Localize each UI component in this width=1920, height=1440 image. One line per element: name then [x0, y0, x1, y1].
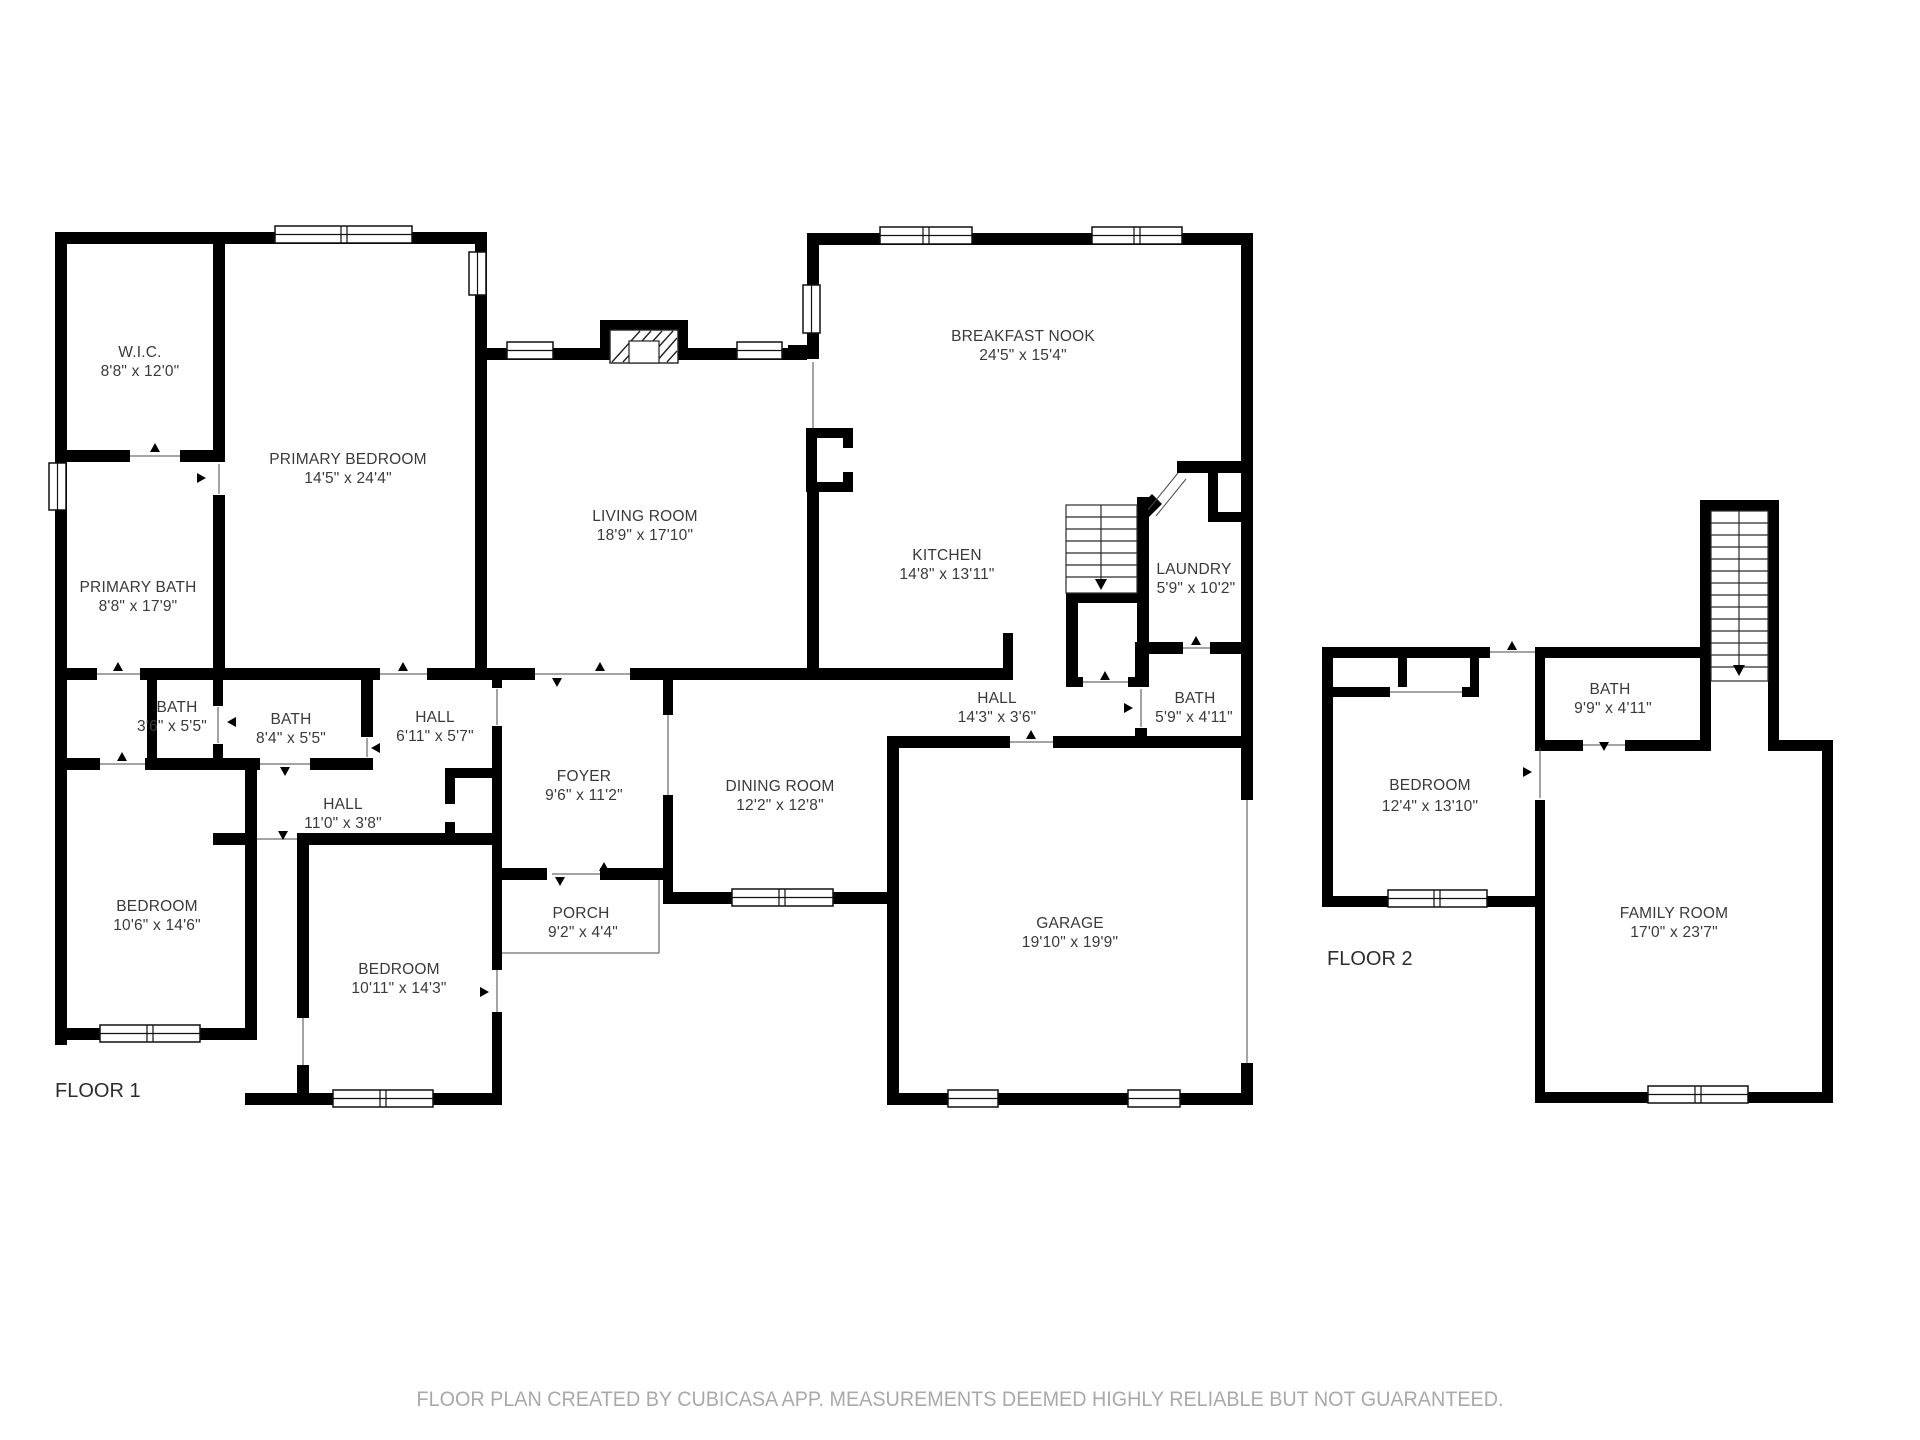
- svg-text:LIVING ROOM: LIVING ROOM: [592, 508, 698, 525]
- svg-text:17'0" x 23'7": 17'0" x 23'7": [1630, 924, 1718, 941]
- door-markers: [113, 443, 1609, 997]
- svg-text:DINING ROOM: DINING ROOM: [726, 778, 835, 795]
- room-label-bedroom-mid: BEDROOM10'11" x 14'3": [351, 961, 446, 997]
- floor-plan-page: W.I.C.8'8" x 12'0" PRIMARY BEDROOM14'5" …: [0, 0, 1920, 1440]
- room-label-living: LIVING ROOM18'9" x 17'10": [592, 508, 698, 544]
- svg-text:14'5" x 24'4": 14'5" x 24'4": [304, 470, 392, 487]
- svg-text:FAMILY ROOM: FAMILY ROOM: [1620, 905, 1728, 922]
- svg-text:BATH: BATH: [271, 711, 312, 728]
- room-label-wic: W.I.C.8'8" x 12'0": [101, 344, 180, 380]
- svg-text:HALL: HALL: [977, 690, 1017, 707]
- room-label-dining: DINING ROOM12'2" x 12'8": [726, 778, 835, 814]
- svg-text:12'2" x 12'8": 12'2" x 12'8": [736, 797, 824, 814]
- room-label-hall-small: HALL6'11" x 5'7": [396, 709, 474, 745]
- svg-text:PRIMARY BEDROOM: PRIMARY BEDROOM: [269, 451, 426, 468]
- svg-text:10'6" x 14'6": 10'6" x 14'6": [113, 917, 201, 934]
- svg-text:BATH: BATH: [1175, 690, 1216, 707]
- fireplace: [600, 320, 688, 363]
- disclaimer-text: FLOOR PLAN CREATED BY CUBICASA APP. MEAS…: [417, 1387, 1504, 1411]
- svg-text:HALL: HALL: [415, 709, 455, 726]
- svg-text:PORCH: PORCH: [553, 905, 610, 922]
- svg-text:14'3" x 3'6": 14'3" x 3'6": [958, 709, 1037, 726]
- svg-text:14'8" x 13'11": 14'8" x 13'11": [899, 566, 994, 583]
- room-label-porch: PORCH9'2" x 4'4": [548, 905, 618, 941]
- svg-text:9'9" x 4'11": 9'9" x 4'11": [1574, 700, 1652, 717]
- svg-text:GARAGE: GARAGE: [1036, 915, 1104, 932]
- room-label-bath-right: BATH5'9" x 4'11": [1155, 690, 1233, 726]
- room-label-bedroom-left: BEDROOM10'6" x 14'6": [113, 898, 201, 934]
- svg-text:10'11" x 14'3": 10'11" x 14'3": [351, 980, 446, 997]
- svg-text:12'4" x 13'10": 12'4" x 13'10": [1382, 798, 1478, 815]
- svg-text:LAUNDRY: LAUNDRY: [1156, 561, 1231, 578]
- floor-plan-canvas: W.I.C.8'8" x 12'0" PRIMARY BEDROOM14'5" …: [0, 0, 1920, 1440]
- svg-text:9'2" x 4'4": 9'2" x 4'4": [548, 924, 618, 941]
- svg-text:BATH: BATH: [157, 699, 198, 716]
- room-label-f2-family-room: FAMILY ROOM17'0" x 23'7": [1620, 905, 1728, 941]
- svg-text:8'8" x 17'9": 8'8" x 17'9": [99, 598, 178, 615]
- svg-text:19'10" x 19'9": 19'10" x 19'9": [1022, 934, 1118, 951]
- room-label-hall-long: HALL11'0" x 3'8": [304, 796, 382, 832]
- room-label-laundry: LAUNDRY5'9" x 10'2": [1156, 561, 1235, 597]
- svg-text:24'5" x 15'4": 24'5" x 15'4": [979, 347, 1067, 364]
- room-label-foyer: FOYER9'6" x 11'2": [545, 768, 623, 804]
- floor1-title: FLOOR 1: [55, 1080, 141, 1102]
- svg-text:KITCHEN: KITCHEN: [912, 547, 981, 564]
- stairs-floor2: [1711, 511, 1768, 681]
- svg-text:3'6" x 5'5": 3'6" x 5'5": [137, 718, 207, 735]
- svg-text:8'8" x 12'0": 8'8" x 12'0": [101, 363, 180, 380]
- svg-text:BEDROOM: BEDROOM: [358, 961, 440, 978]
- room-label-kitchen: KITCHEN14'8" x 13'11": [899, 547, 994, 583]
- room-label-f2-bath: BATH9'9" x 4'11": [1574, 681, 1652, 717]
- svg-text:BREAKFAST NOOK: BREAKFAST NOOK: [951, 328, 1095, 345]
- svg-text:8'4" x 5'5": 8'4" x 5'5": [256, 730, 326, 747]
- svg-text:FOYER: FOYER: [557, 768, 611, 785]
- svg-text:BATH: BATH: [1590, 681, 1631, 698]
- svg-text:5'9" x 10'2": 5'9" x 10'2": [1157, 580, 1236, 597]
- room-label-primary-bedroom: PRIMARY BEDROOM14'5" x 24'4": [269, 451, 426, 487]
- svg-text:9'6" x 11'2": 9'6" x 11'2": [545, 787, 623, 804]
- svg-text:6'11" x 5'7": 6'11" x 5'7": [396, 728, 474, 745]
- svg-text:BEDROOM: BEDROOM: [116, 898, 198, 915]
- room-label-bath-mid: BATH8'4" x 5'5": [256, 711, 326, 747]
- room-label-garage: GARAGE19'10" x 19'9": [1022, 915, 1118, 951]
- svg-text:BEDROOM: BEDROOM: [1389, 777, 1471, 794]
- room-label-f2-bedroom: BEDROOM12'4" x 13'10": [1382, 777, 1478, 815]
- svg-text:PRIMARY BATH: PRIMARY BATH: [80, 579, 197, 596]
- floor2-title: FLOOR 2: [1327, 948, 1413, 970]
- svg-text:18'9" x 17'10": 18'9" x 17'10": [597, 527, 693, 544]
- svg-text:5'9" x 4'11": 5'9" x 4'11": [1155, 709, 1233, 726]
- room-label-breakfast-nook: BREAKFAST NOOK24'5" x 15'4": [951, 328, 1095, 364]
- svg-text:HALL: HALL: [323, 796, 363, 813]
- room-label-hall-wide: HALL14'3" x 3'6": [958, 690, 1037, 726]
- svg-text:W.I.C.: W.I.C.: [118, 344, 161, 361]
- svg-text:11'0" x 3'8": 11'0" x 3'8": [304, 815, 382, 832]
- room-label-primary-bath: PRIMARY BATH8'8" x 17'9": [80, 579, 197, 615]
